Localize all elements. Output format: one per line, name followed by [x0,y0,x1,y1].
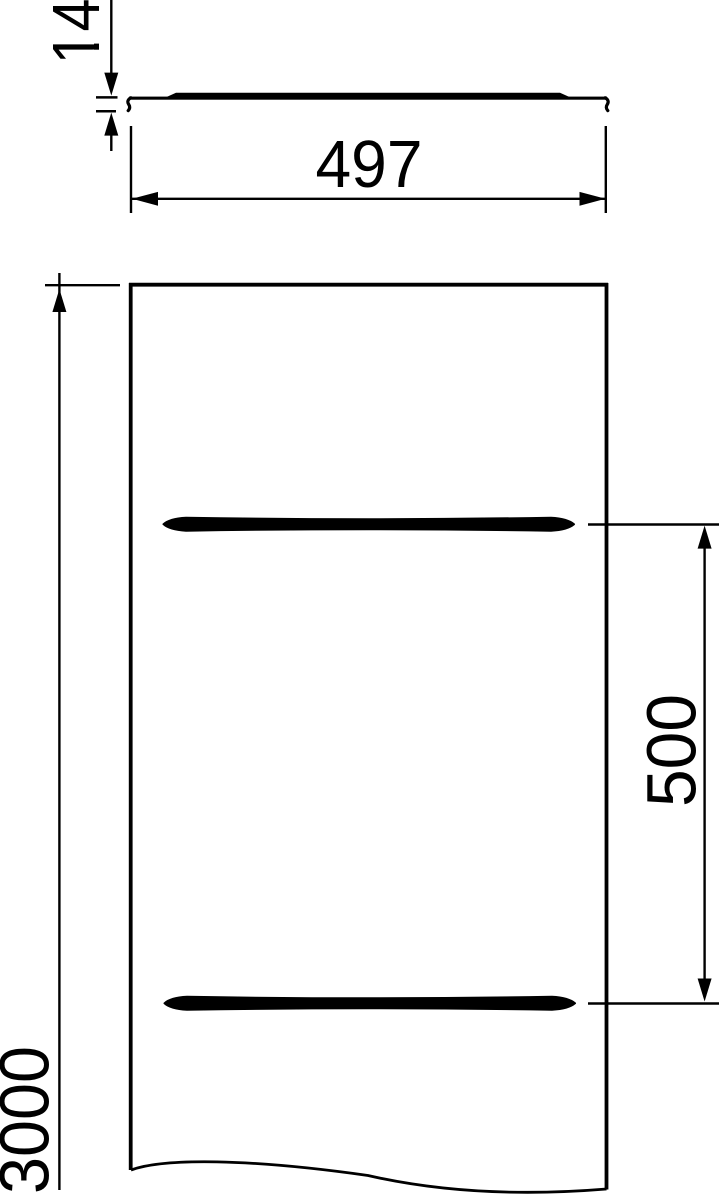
svg-text:497: 497 [316,127,423,202]
svg-text:500: 500 [633,694,711,807]
svg-text:14: 14 [39,0,114,65]
svg-text:3000: 3000 [0,1046,64,1194]
